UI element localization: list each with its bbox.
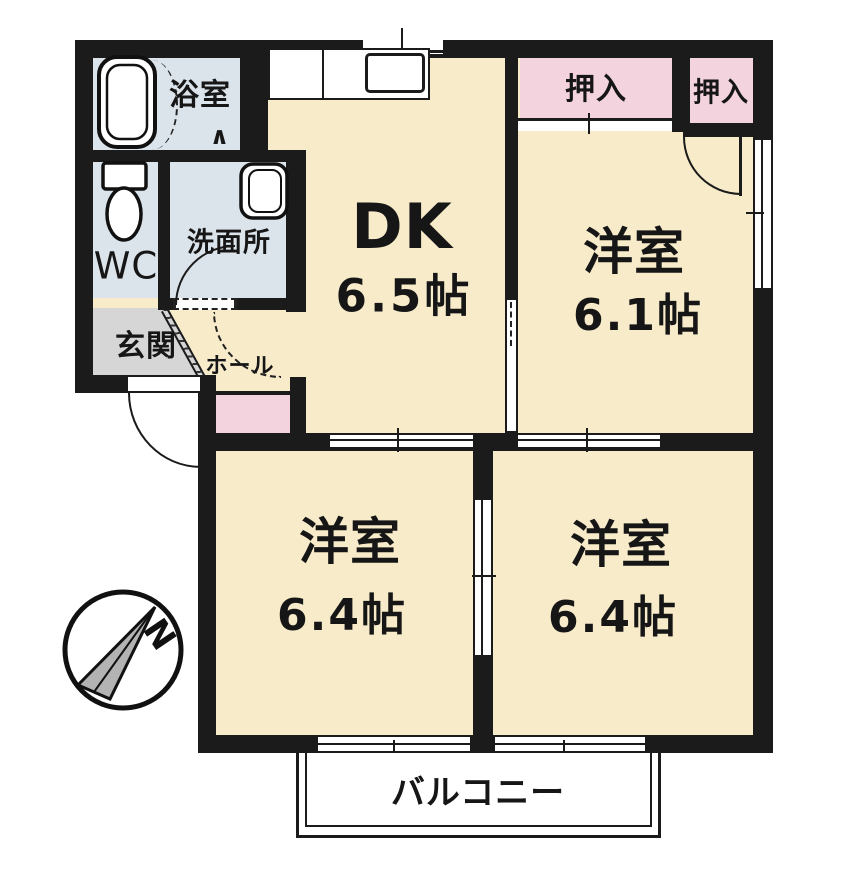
bedroom-ne-label: 洋室 — [583, 227, 685, 277]
bedroom-ne-window-line — [761, 140, 763, 288]
entrance-door-gap — [128, 377, 200, 391]
bedroom-se-balcony-door-line — [495, 743, 645, 745]
balcony-label: バルコニー — [391, 776, 565, 810]
entrance-label: 玄関 — [115, 332, 177, 362]
closet-left-sliding-tick — [588, 113, 590, 134]
floor-plan: ∧ N 浴室 WC 洗面所 玄関 ホール DK 6.5帖 押入 押入 洋室 6.… — [0, 0, 846, 881]
wall-closet-right-south — [683, 123, 753, 137]
washroom-sink-icon — [238, 161, 290, 221]
wall-closet-divider — [672, 40, 690, 132]
dk-bedroom-ne-sliding-dash — [510, 302, 512, 346]
hall-closet — [216, 395, 290, 433]
bedrooms-divider-sliding-line — [481, 500, 483, 655]
bedrooms-divider-sliding-tick — [472, 575, 496, 577]
wall-bottom — [198, 735, 773, 753]
closet-right-label: 押入 — [693, 80, 749, 107]
kitchen-sink — [365, 53, 425, 93]
bedroom-ne-size: 6.1帖 — [573, 294, 703, 338]
bedroom-ne-door-leaf — [739, 137, 742, 196]
dk-label: DK — [351, 196, 453, 258]
wall-hall-closet-top — [216, 391, 292, 395]
bedroom-se-sliding-tick — [586, 428, 588, 452]
bedroom-sw-sliding-line — [330, 439, 473, 441]
bedrooms-divider-sliding-door — [475, 500, 491, 655]
closet-left-sliding-door — [518, 121, 672, 131]
bedroom-se-sliding-line — [518, 439, 660, 441]
bedroom-sw-sliding-tick — [397, 428, 399, 452]
bath-label: 浴室 — [169, 81, 231, 111]
bedroom-se-size: 6.4帖 — [548, 596, 678, 640]
bedroom-ne-window — [755, 140, 771, 288]
compass: N — [58, 585, 188, 715]
bedroom-sw-size: 6.4帖 — [277, 594, 407, 638]
bath-folding-door-symbol: ∧ — [210, 124, 231, 148]
hall-label: ホール — [205, 356, 274, 378]
wall-mid-horizontal — [216, 433, 773, 451]
wc-label: WC — [94, 248, 158, 285]
wall-hall-dk — [290, 377, 306, 435]
dk-size: 6.5帖 — [336, 274, 473, 319]
closet-left-label: 押入 — [565, 75, 627, 105]
bedroom-sw-sliding-door — [330, 435, 473, 447]
toilet-icon — [100, 160, 150, 244]
washroom-label: 洗面所 — [187, 230, 271, 257]
wall-left — [75, 40, 93, 393]
bedroom-sw-label: 洋室 — [299, 517, 401, 567]
bedroom-ne-window-tick — [746, 212, 764, 214]
wall-bath-dk — [240, 40, 268, 150]
bedroom-se-sliding-door — [518, 435, 660, 447]
wall-wc-washroom — [158, 162, 170, 308]
kitchen-counter-divider — [322, 48, 324, 100]
bathtub-icon — [96, 54, 158, 150]
bedroom-se-label: 洋室 — [570, 520, 672, 570]
